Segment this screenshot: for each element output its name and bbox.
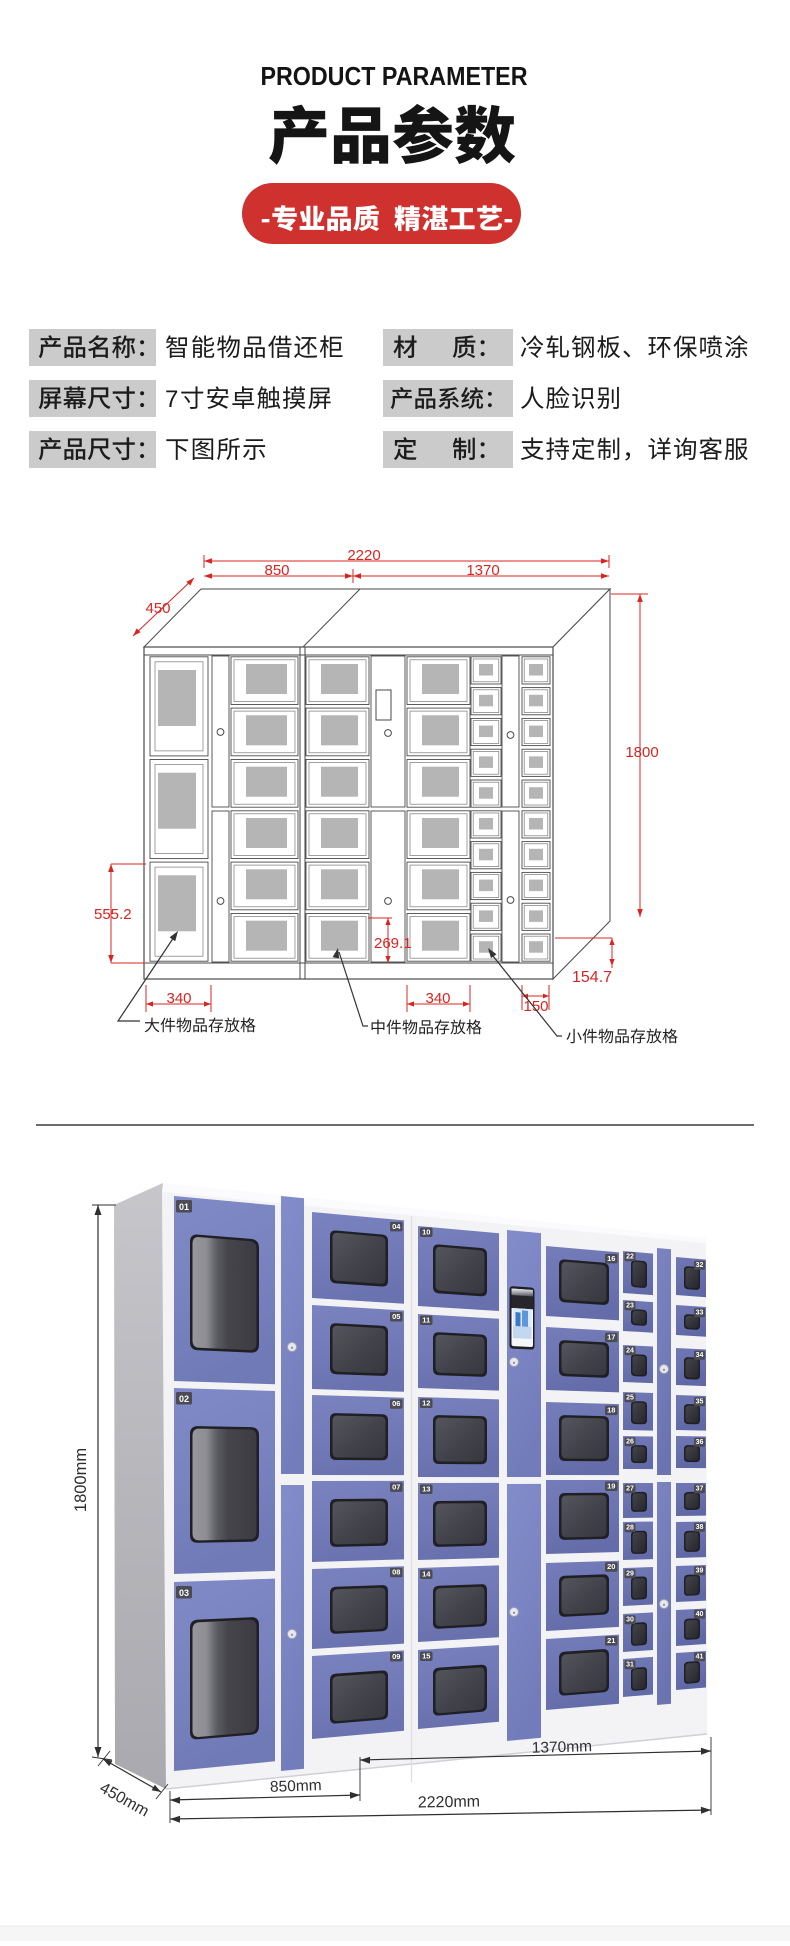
svg-text:10: 10 bbox=[422, 1227, 430, 1236]
svg-text:1800mm: 1800mm bbox=[72, 1448, 90, 1512]
svg-text:06: 06 bbox=[392, 1399, 400, 1408]
svg-text:32: 32 bbox=[696, 1262, 704, 1269]
svg-text:21: 21 bbox=[607, 1636, 615, 1645]
svg-text:1370mm: 1370mm bbox=[532, 1738, 593, 1757]
svg-text:14: 14 bbox=[422, 1569, 431, 1578]
svg-text:26: 26 bbox=[626, 1439, 634, 1446]
svg-text:41: 41 bbox=[696, 1654, 704, 1661]
svg-text:850mm: 850mm bbox=[270, 1777, 322, 1796]
svg-text:24: 24 bbox=[626, 1348, 634, 1355]
svg-text:11: 11 bbox=[422, 1315, 430, 1324]
svg-text:33: 33 bbox=[696, 1310, 704, 1317]
svg-text:35: 35 bbox=[696, 1399, 704, 1406]
svg-text:34: 34 bbox=[696, 1352, 704, 1359]
svg-text:27: 27 bbox=[626, 1486, 634, 1493]
svg-text:12: 12 bbox=[422, 1398, 430, 1407]
svg-text:38: 38 bbox=[696, 1524, 704, 1531]
svg-text:2220mm: 2220mm bbox=[418, 1793, 481, 1811]
svg-text:08: 08 bbox=[392, 1568, 400, 1577]
svg-text:17: 17 bbox=[607, 1333, 615, 1342]
svg-text:25: 25 bbox=[626, 1395, 634, 1402]
svg-text:31: 31 bbox=[626, 1662, 634, 1669]
svg-text:36: 36 bbox=[696, 1439, 704, 1446]
svg-text:29: 29 bbox=[626, 1571, 634, 1578]
svg-text:850: 850 bbox=[264, 562, 289, 579]
svg-text:1800: 1800 bbox=[625, 744, 658, 761]
svg-text:PRODUCT PARAMETER: PRODUCT PARAMETER bbox=[261, 61, 528, 91]
svg-text:05: 05 bbox=[392, 1312, 400, 1321]
svg-text:340: 340 bbox=[425, 990, 450, 1007]
svg-text:154.7: 154.7 bbox=[572, 969, 612, 986]
svg-text:39: 39 bbox=[696, 1568, 704, 1575]
svg-text:23: 23 bbox=[626, 1303, 634, 1310]
svg-text:150: 150 bbox=[523, 998, 548, 1015]
svg-text:555.2: 555.2 bbox=[94, 906, 132, 923]
svg-text:09: 09 bbox=[392, 1652, 400, 1661]
svg-text:22: 22 bbox=[626, 1254, 634, 1261]
svg-text:07: 07 bbox=[392, 1482, 400, 1491]
svg-text:20: 20 bbox=[607, 1562, 615, 1571]
svg-text:450: 450 bbox=[145, 600, 170, 617]
svg-text:40: 40 bbox=[696, 1611, 704, 1618]
svg-text:01: 01 bbox=[179, 1202, 189, 1212]
svg-text:30: 30 bbox=[626, 1617, 634, 1624]
svg-text:1370: 1370 bbox=[466, 562, 499, 579]
svg-text:03: 03 bbox=[179, 1588, 189, 1598]
svg-text:37: 37 bbox=[696, 1486, 704, 1493]
svg-text:04: 04 bbox=[392, 1222, 401, 1231]
svg-text:28: 28 bbox=[626, 1525, 634, 1532]
svg-text:7: 7 bbox=[165, 386, 178, 413]
svg-text:18: 18 bbox=[607, 1406, 615, 1415]
svg-text:02: 02 bbox=[179, 1394, 189, 1404]
svg-text:340: 340 bbox=[166, 990, 191, 1007]
svg-text:269.1: 269.1 bbox=[374, 935, 412, 952]
svg-text:2220: 2220 bbox=[347, 547, 380, 564]
svg-text:19: 19 bbox=[607, 1481, 615, 1490]
svg-text:13: 13 bbox=[422, 1484, 430, 1493]
svg-text:15: 15 bbox=[422, 1651, 430, 1660]
svg-text:16: 16 bbox=[607, 1254, 615, 1263]
